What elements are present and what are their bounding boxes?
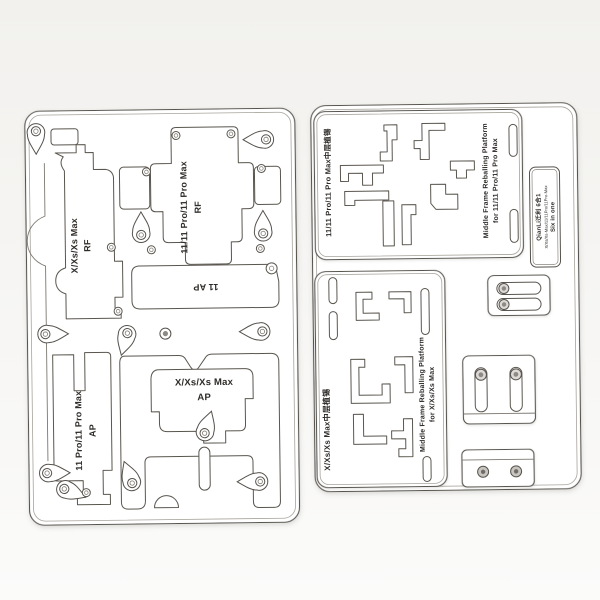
label-ap-x-line2: AP: [197, 392, 211, 403]
brand-label-line2: X/Xs/Xs-Max/11/11Pro/11Pro-Max: [543, 185, 549, 249]
screw-hole: [147, 246, 155, 254]
stencil-11-plate: 11/11 Pro/11 Pro Max中层植锡 Middle Frame Re…: [314, 109, 524, 260]
screw-hole: [227, 130, 235, 138]
screw-hole: [257, 164, 265, 172]
photo-canvas: X/Xs/Xs Max RF 11/11 Pro/11 Pro Max RF 1…: [0, 0, 600, 600]
cutout-slot: [199, 447, 211, 490]
stencil-11-slot: [510, 209, 518, 242]
accessory-slot-plate-h: [488, 275, 550, 316]
accessory-slot-plate-v: [463, 355, 536, 424]
stencil-x-label-en2: for X/Xs/Xs Max: [429, 367, 437, 423]
product-photo: X/Xs/Xs Max RF 11/11 Pro/11 Pro Max RF 1…: [0, 0, 600, 600]
stencil-11-slot: [509, 124, 517, 156]
brand-label: QianLi迁利 6合1 X/Xs/Xs-Max/11/11Pro/11Pro-…: [529, 167, 560, 267]
screw-hole: [107, 243, 115, 251]
stencil-x-label-cn: X/Xs/Xs Max中层植锡: [321, 389, 332, 471]
label-rf-11-line2: RF: [193, 201, 203, 214]
stencil-11-label-en2: for 11/11 Pro/11 Pro Max: [492, 138, 500, 223]
stencil-x-slot: [423, 456, 431, 481]
label-ap-11pro-line1: 11 Pro/11 Pro Max: [73, 391, 84, 471]
stencil-11-label-en1: Middle Frame Reballing Platform: [482, 123, 490, 238]
screw-hole: [114, 307, 122, 315]
right-assembly: QianLi迁利 6合1 X/Xs/Xs-Max/11/11Pro/11Pro-…: [311, 103, 582, 492]
brand-label-line3: Six in one: [550, 201, 556, 232]
label-rf-11-line1: 11/11 Pro/11 Pro Max: [178, 161, 189, 254]
screw-boss: [266, 263, 277, 274]
screw-hole: [82, 489, 90, 497]
stencil-11-label-cn: 11/11 Pro/11 Pro Max中层植锡: [322, 128, 333, 237]
cutout-small-rect: [51, 129, 78, 145]
main-platform-plate: X/Xs/Xs Max RF 11/11 Pro/11 Pro Max RF 1…: [25, 108, 300, 525]
cutout-pocket-right: [254, 166, 280, 204]
accessory-clamp-bar: [462, 449, 534, 487]
stencil-x-label-en1: Middle Frame Reballing Platform: [418, 337, 426, 452]
screw-hole: [256, 244, 264, 252]
label-rf-x-line2: RF: [82, 239, 92, 252]
screw-hole: [142, 168, 150, 176]
stencil-x-slot: [421, 288, 430, 334]
label-rf-x-line1: X/Xs/Xs Max: [69, 218, 80, 273]
screw-hole: [172, 131, 180, 139]
label-ap-11pro-line2: AP: [88, 424, 98, 437]
accessory-c-body: [462, 449, 534, 487]
stencil-x-slot: [329, 278, 337, 304]
stencil-x-slot: [329, 312, 337, 340]
stencil-x-plate: X/Xs/Xs Max中层植锡 Middle Frame Reballing P…: [315, 270, 448, 488]
label-ap-x-line1: X/Xs/Xs Max: [175, 377, 234, 389]
label-ap-11: 11 AP: [193, 282, 218, 292]
